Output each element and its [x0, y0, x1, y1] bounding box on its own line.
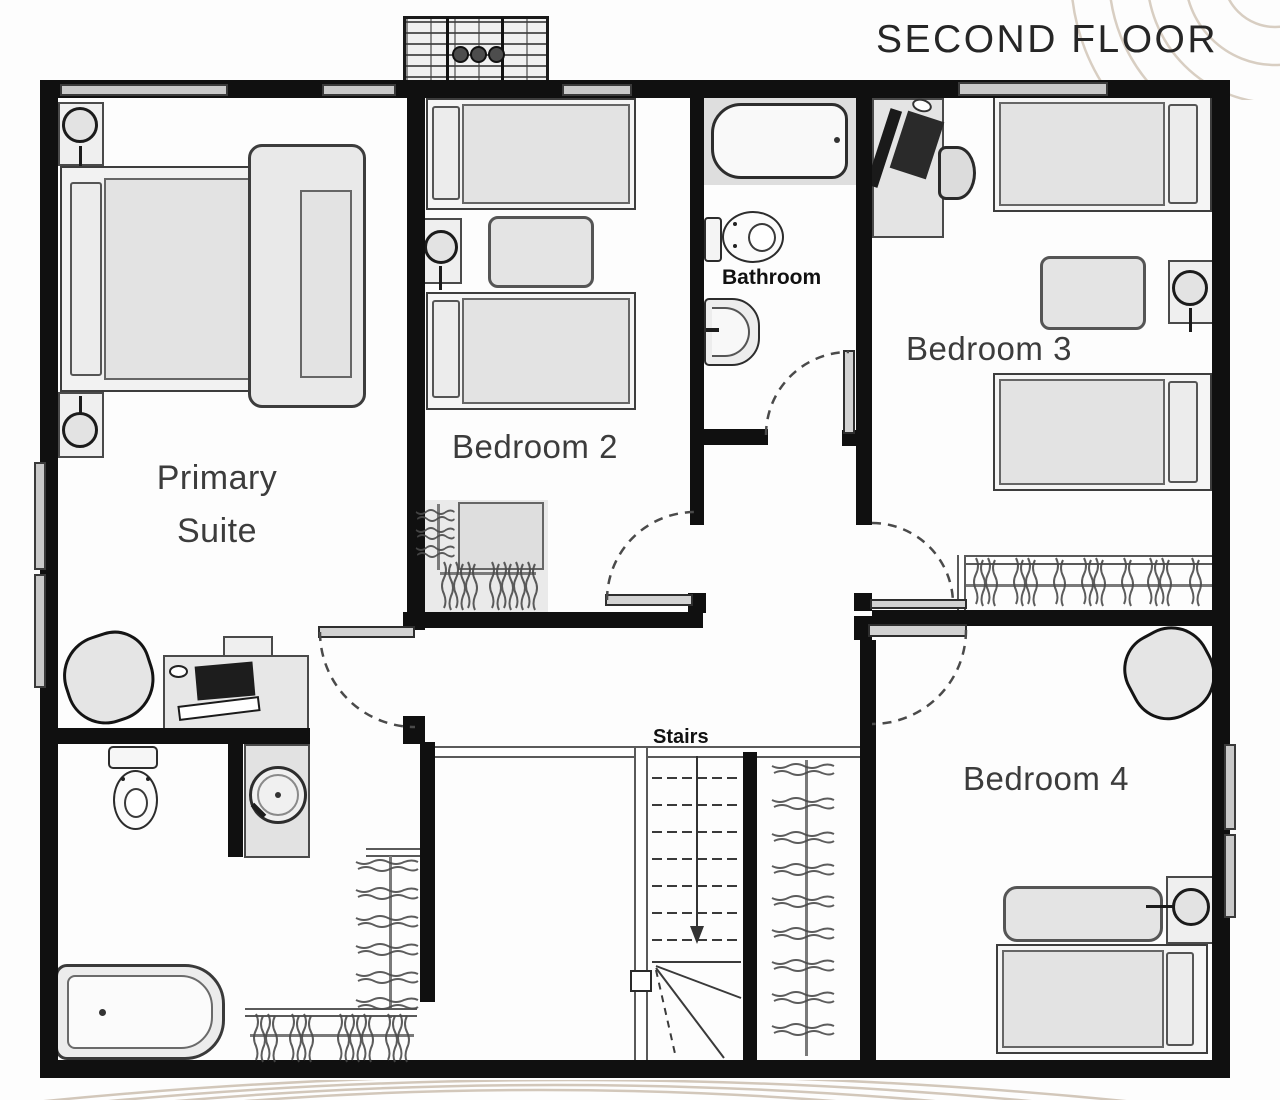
door-swing-arcs [320, 352, 966, 727]
room-label-bedroom3: Bedroom 3 [906, 330, 1072, 368]
room-label-bathroom: Bathroom [722, 266, 821, 290]
door-arc-bathroom [766, 352, 849, 435]
floor-plan: SECOND FLOOR Primary Suite Bedroom 2 Bat… [0, 0, 1280, 1100]
page-title: SECOND FLOOR [876, 18, 1218, 62]
room-label-bedroom2: Bedroom 2 [452, 428, 618, 466]
room-label-stairs: Stairs [653, 726, 709, 749]
room-label-bedroom4: Bedroom 4 [963, 760, 1129, 798]
door-arc-bedroom3 [872, 523, 953, 604]
stair-direction-arrow [690, 756, 704, 944]
room-label-primary-suite: Primary Suite [117, 452, 317, 558]
room-label-line: Primary [117, 452, 317, 505]
door-arc-bedroom2 [607, 512, 695, 600]
door-arc-bedroom4 [872, 630, 966, 724]
door-arc-primary [320, 632, 415, 727]
room-label-line: Suite [117, 505, 317, 558]
